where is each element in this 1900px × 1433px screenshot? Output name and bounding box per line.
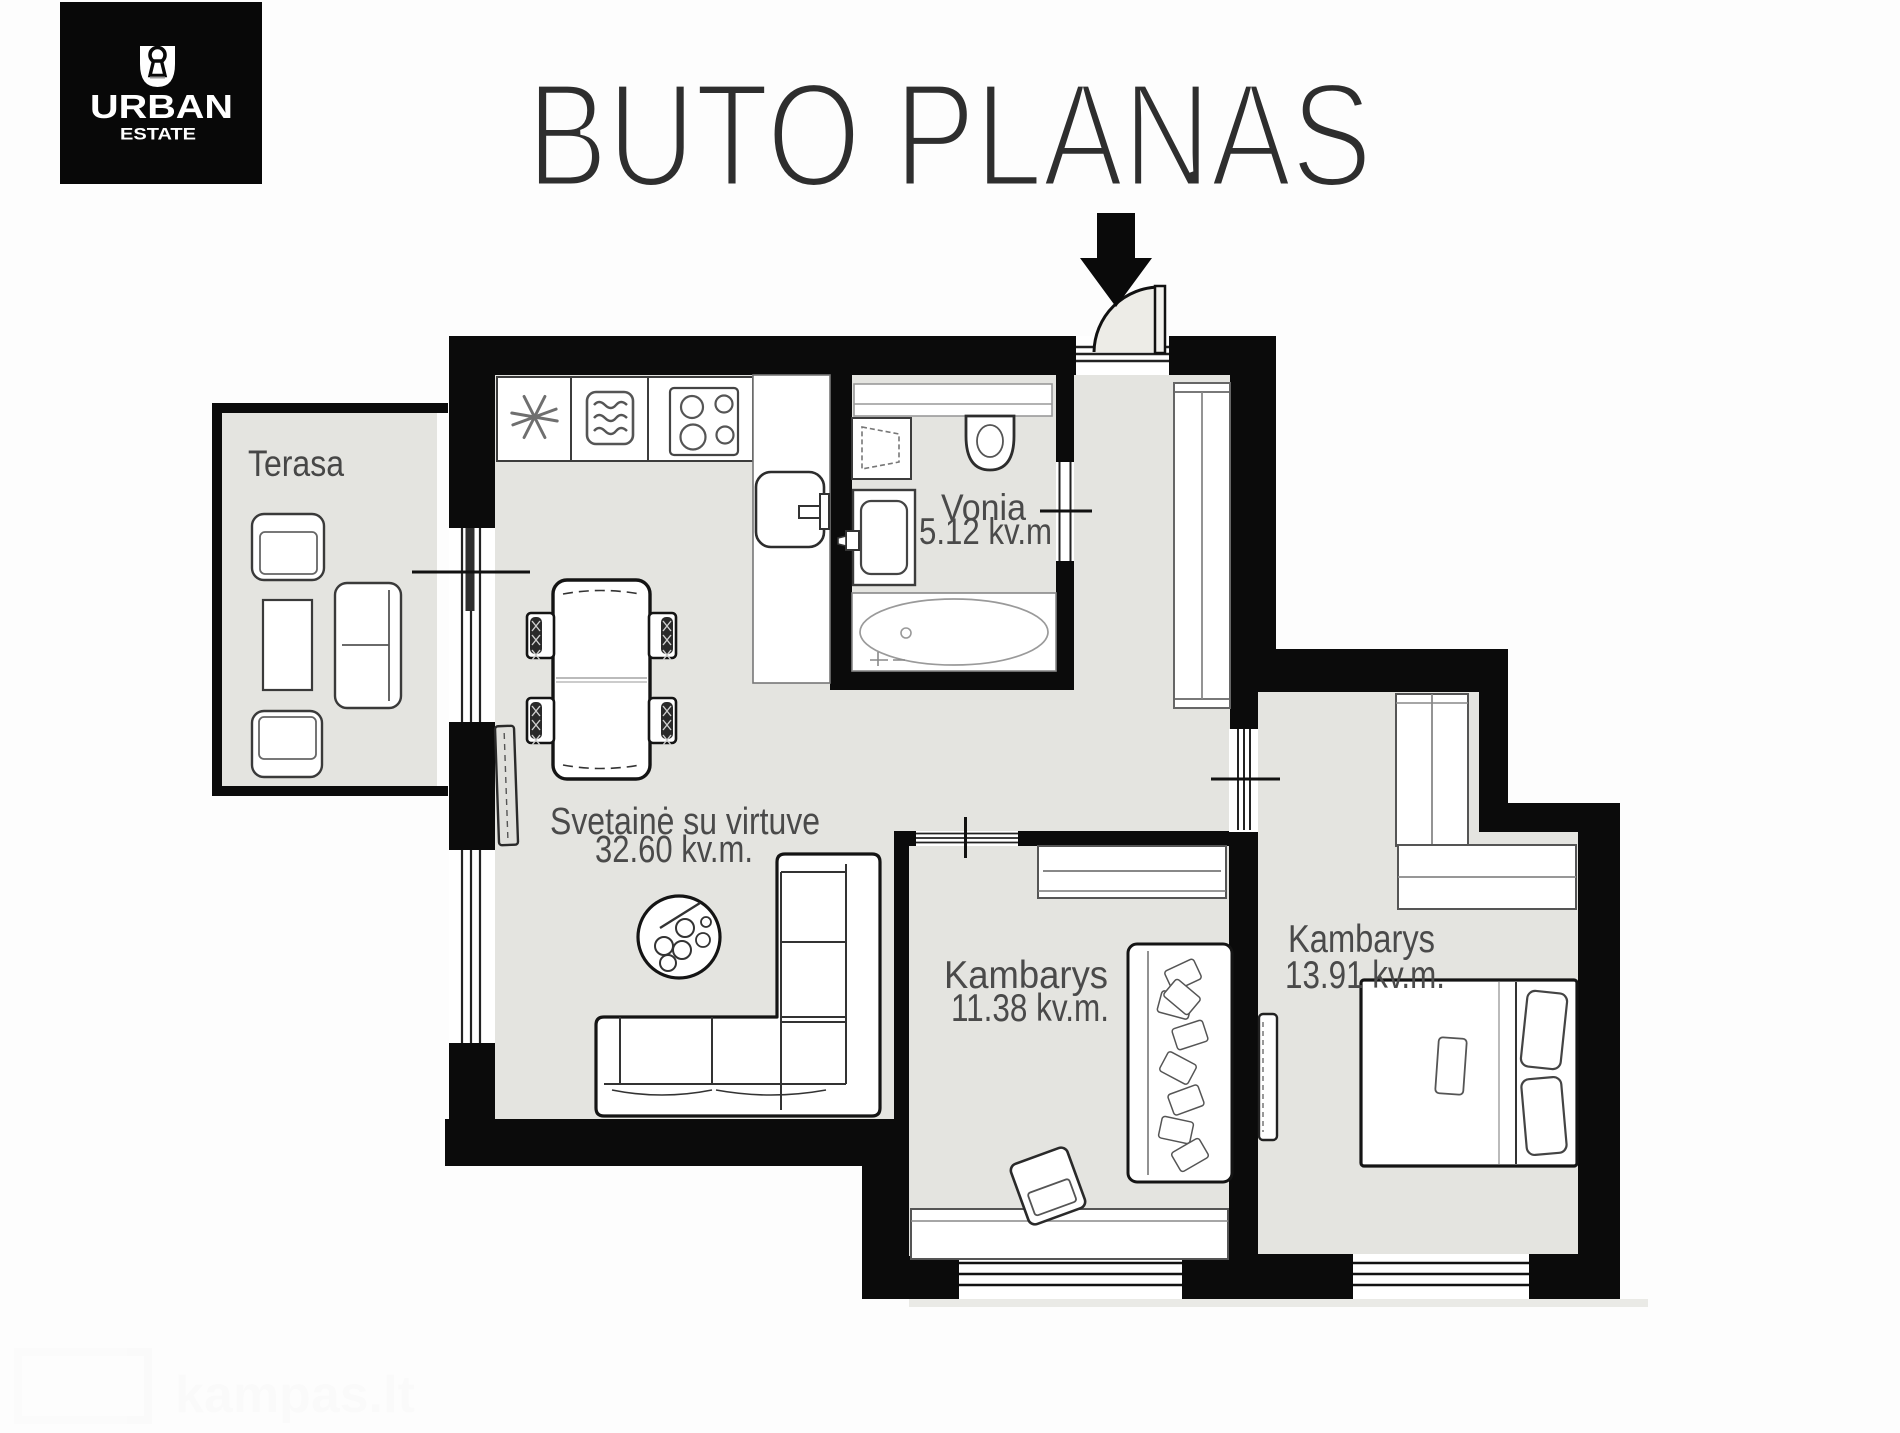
svg-text:32.60 kv.m.: 32.60 kv.m. [595, 829, 753, 871]
svg-text:URBAN: URBAN [90, 88, 233, 125]
svg-text:ESTATE: ESTATE [120, 125, 196, 144]
svg-text:5.12 kv.m: 5.12 kv.m [919, 511, 1052, 552]
svg-text:11.38 kv.m.: 11.38 kv.m. [951, 987, 1109, 1030]
svg-text:13.91 kv.m.: 13.91 kv.m. [1285, 954, 1445, 997]
svg-text:BUTO PLANAS: BUTO PLANAS [527, 53, 1372, 218]
svg-text:kampas.lt: kampas.lt [175, 1366, 415, 1424]
svg-text:Terasa: Terasa [248, 443, 344, 484]
